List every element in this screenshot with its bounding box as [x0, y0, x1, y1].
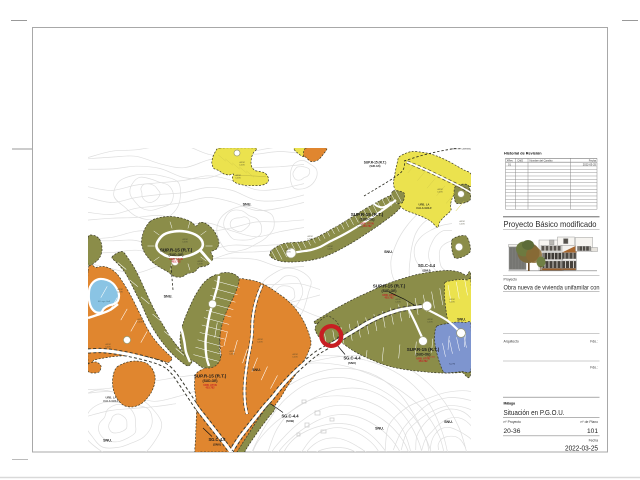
svg-text:Nombre del Cambio: Nombre del Cambio — [530, 158, 554, 162]
svg-text:Fdo.:: Fdo.: — [590, 366, 598, 370]
svg-text:1.170: 1.170 — [395, 301, 401, 303]
svg-text:SNU.: SNU. — [103, 439, 112, 443]
svg-text:(SNU): (SNU) — [348, 361, 356, 365]
svg-text:SNU.: SNU. — [164, 295, 173, 299]
svg-text:Historial de Revisión: Historial de Revisión — [504, 152, 542, 156]
svg-text:225.450: 225.450 — [427, 357, 436, 359]
svg-text:Proyecto: Proyecto — [504, 278, 517, 282]
svg-text:2022-03-25: 2022-03-25 — [583, 162, 597, 166]
svg-text:1.170: 1.170 — [105, 346, 111, 348]
svg-text:SNU.: SNU. — [375, 427, 384, 431]
svg-text:453.782: 453.782 — [362, 225, 372, 228]
svg-text:ChID: ChID — [517, 158, 523, 162]
svg-text:1.170: 1.170 — [449, 301, 455, 303]
svg-text:URB. LA: URB. LA — [106, 396, 117, 400]
svg-text:CALA GOLF: CALA GOLF — [103, 399, 119, 403]
svg-text:453.782: 453.782 — [418, 360, 428, 363]
svg-text:1.170: 1.170 — [292, 356, 298, 358]
svg-text:nº de Plano: nº de Plano — [581, 420, 599, 424]
svg-text:20-36: 20-36 — [504, 428, 521, 435]
svg-text:(SUD-OE): (SUD-OE) — [381, 289, 396, 293]
svg-text:1.170: 1.170 — [229, 353, 235, 355]
svg-text:Fecha: Fecha — [589, 438, 599, 442]
svg-text:Situación en P.G.O.U.: Situación en P.G.O.U. — [504, 408, 565, 417]
svg-text:Fecha: Fecha — [589, 158, 597, 162]
svg-text:1.170: 1.170 — [162, 251, 168, 253]
svg-text:1.170: 1.170 — [235, 177, 241, 179]
svg-text:1.170: 1.170 — [459, 223, 465, 225]
svg-text:(SUD-OE): (SUD-OE) — [359, 218, 374, 222]
svg-text:Málaga: Málaga — [504, 402, 516, 406]
svg-text:(SJD-GS): (SJD-GS) — [370, 165, 381, 168]
svg-text:1.170: 1.170 — [307, 238, 313, 240]
svg-text:SUP.R-15 (R.T.): SUP.R-15 (R.T.) — [364, 161, 387, 165]
svg-text:453.782: 453.782 — [171, 261, 181, 264]
svg-text:SUP.R-15 (R.T.): SUP.R-15 (R.T.) — [194, 374, 227, 379]
svg-text:SNU.: SNU. — [252, 368, 261, 372]
svg-text:SNU.: SNU. — [243, 203, 252, 207]
svg-text:1.170: 1.170 — [239, 164, 245, 166]
svg-text:URB. LA: URB. LA — [419, 203, 430, 207]
svg-text:SNU.: SNU. — [384, 250, 393, 254]
svg-text:(SUD-OE): (SUD-OE) — [168, 253, 183, 257]
svg-text:(SUB): (SUB) — [286, 419, 294, 423]
svg-text:XRev: XRev — [507, 158, 514, 162]
svg-text:1.170: 1.170 — [285, 251, 291, 253]
svg-text:SUP.R-15 (R.T.): SUP.R-15 (R.T.) — [407, 347, 440, 352]
svg-text:1.170: 1.170 — [427, 321, 433, 323]
svg-text:Proyecto Básico modificado: Proyecto Básico modificado — [504, 219, 597, 229]
svg-text:Fdo.:: Fdo.: — [590, 340, 598, 344]
svg-text:1.170: 1.170 — [437, 191, 443, 193]
svg-text:SUP.R-15 (R.T.): SUP.R-15 (R.T.) — [373, 284, 406, 289]
svg-text:101: 101 — [587, 428, 598, 435]
svg-text:453.782: 453.782 — [205, 387, 215, 390]
svg-text:CALA GOLF: CALA GOLF — [416, 206, 432, 210]
svg-text:SG.C-4.4: SG.C-4.4 — [343, 356, 361, 361]
svg-text:2022-03-25: 2022-03-25 — [565, 443, 598, 452]
svg-text:(SNU): (SNU) — [213, 442, 221, 446]
svg-text:1.170: 1.170 — [257, 341, 263, 343]
svg-text:nº Proyecto: nº Proyecto — [504, 420, 522, 424]
svg-text:SNU.: SNU. — [457, 318, 466, 322]
svg-text:1.170: 1.170 — [137, 321, 143, 323]
svg-text:S-276: S-276 — [449, 364, 456, 366]
svg-text:1.170: 1.170 — [357, 226, 363, 228]
svg-text:(SNU): (SNU) — [422, 268, 430, 272]
svg-text:SG.C-4.4: SG.C-4.4 — [418, 263, 436, 268]
svg-text:Arquitecto: Arquitecto — [504, 340, 519, 344]
svg-text:Obra nueva de vivienda unifami: Obra nueva de vivienda unifamilar con — [504, 284, 600, 291]
svg-text:1.170: 1.170 — [182, 241, 188, 243]
svg-text:453.782: 453.782 — [384, 297, 394, 300]
svg-text:1.170: 1.170 — [197, 263, 203, 265]
svg-text:SNU.: SNU. — [444, 420, 453, 424]
svg-text:SG.C-4.4: SG.C-4.4 — [281, 414, 299, 419]
svg-text:SG.C-4.4: SG.C-4.4 — [208, 437, 226, 442]
svg-text:SUP.R-15 (R.T.): SUP.R-15 (R.T.) — [351, 212, 384, 217]
svg-text:1.170: 1.170 — [327, 248, 333, 250]
svg-text:1.170: 1.170 — [117, 291, 123, 293]
svg-text:El Lago Golf: El Lago Golf — [98, 301, 110, 303]
svg-text:(SUD-OE): (SUD-OE) — [202, 379, 217, 383]
